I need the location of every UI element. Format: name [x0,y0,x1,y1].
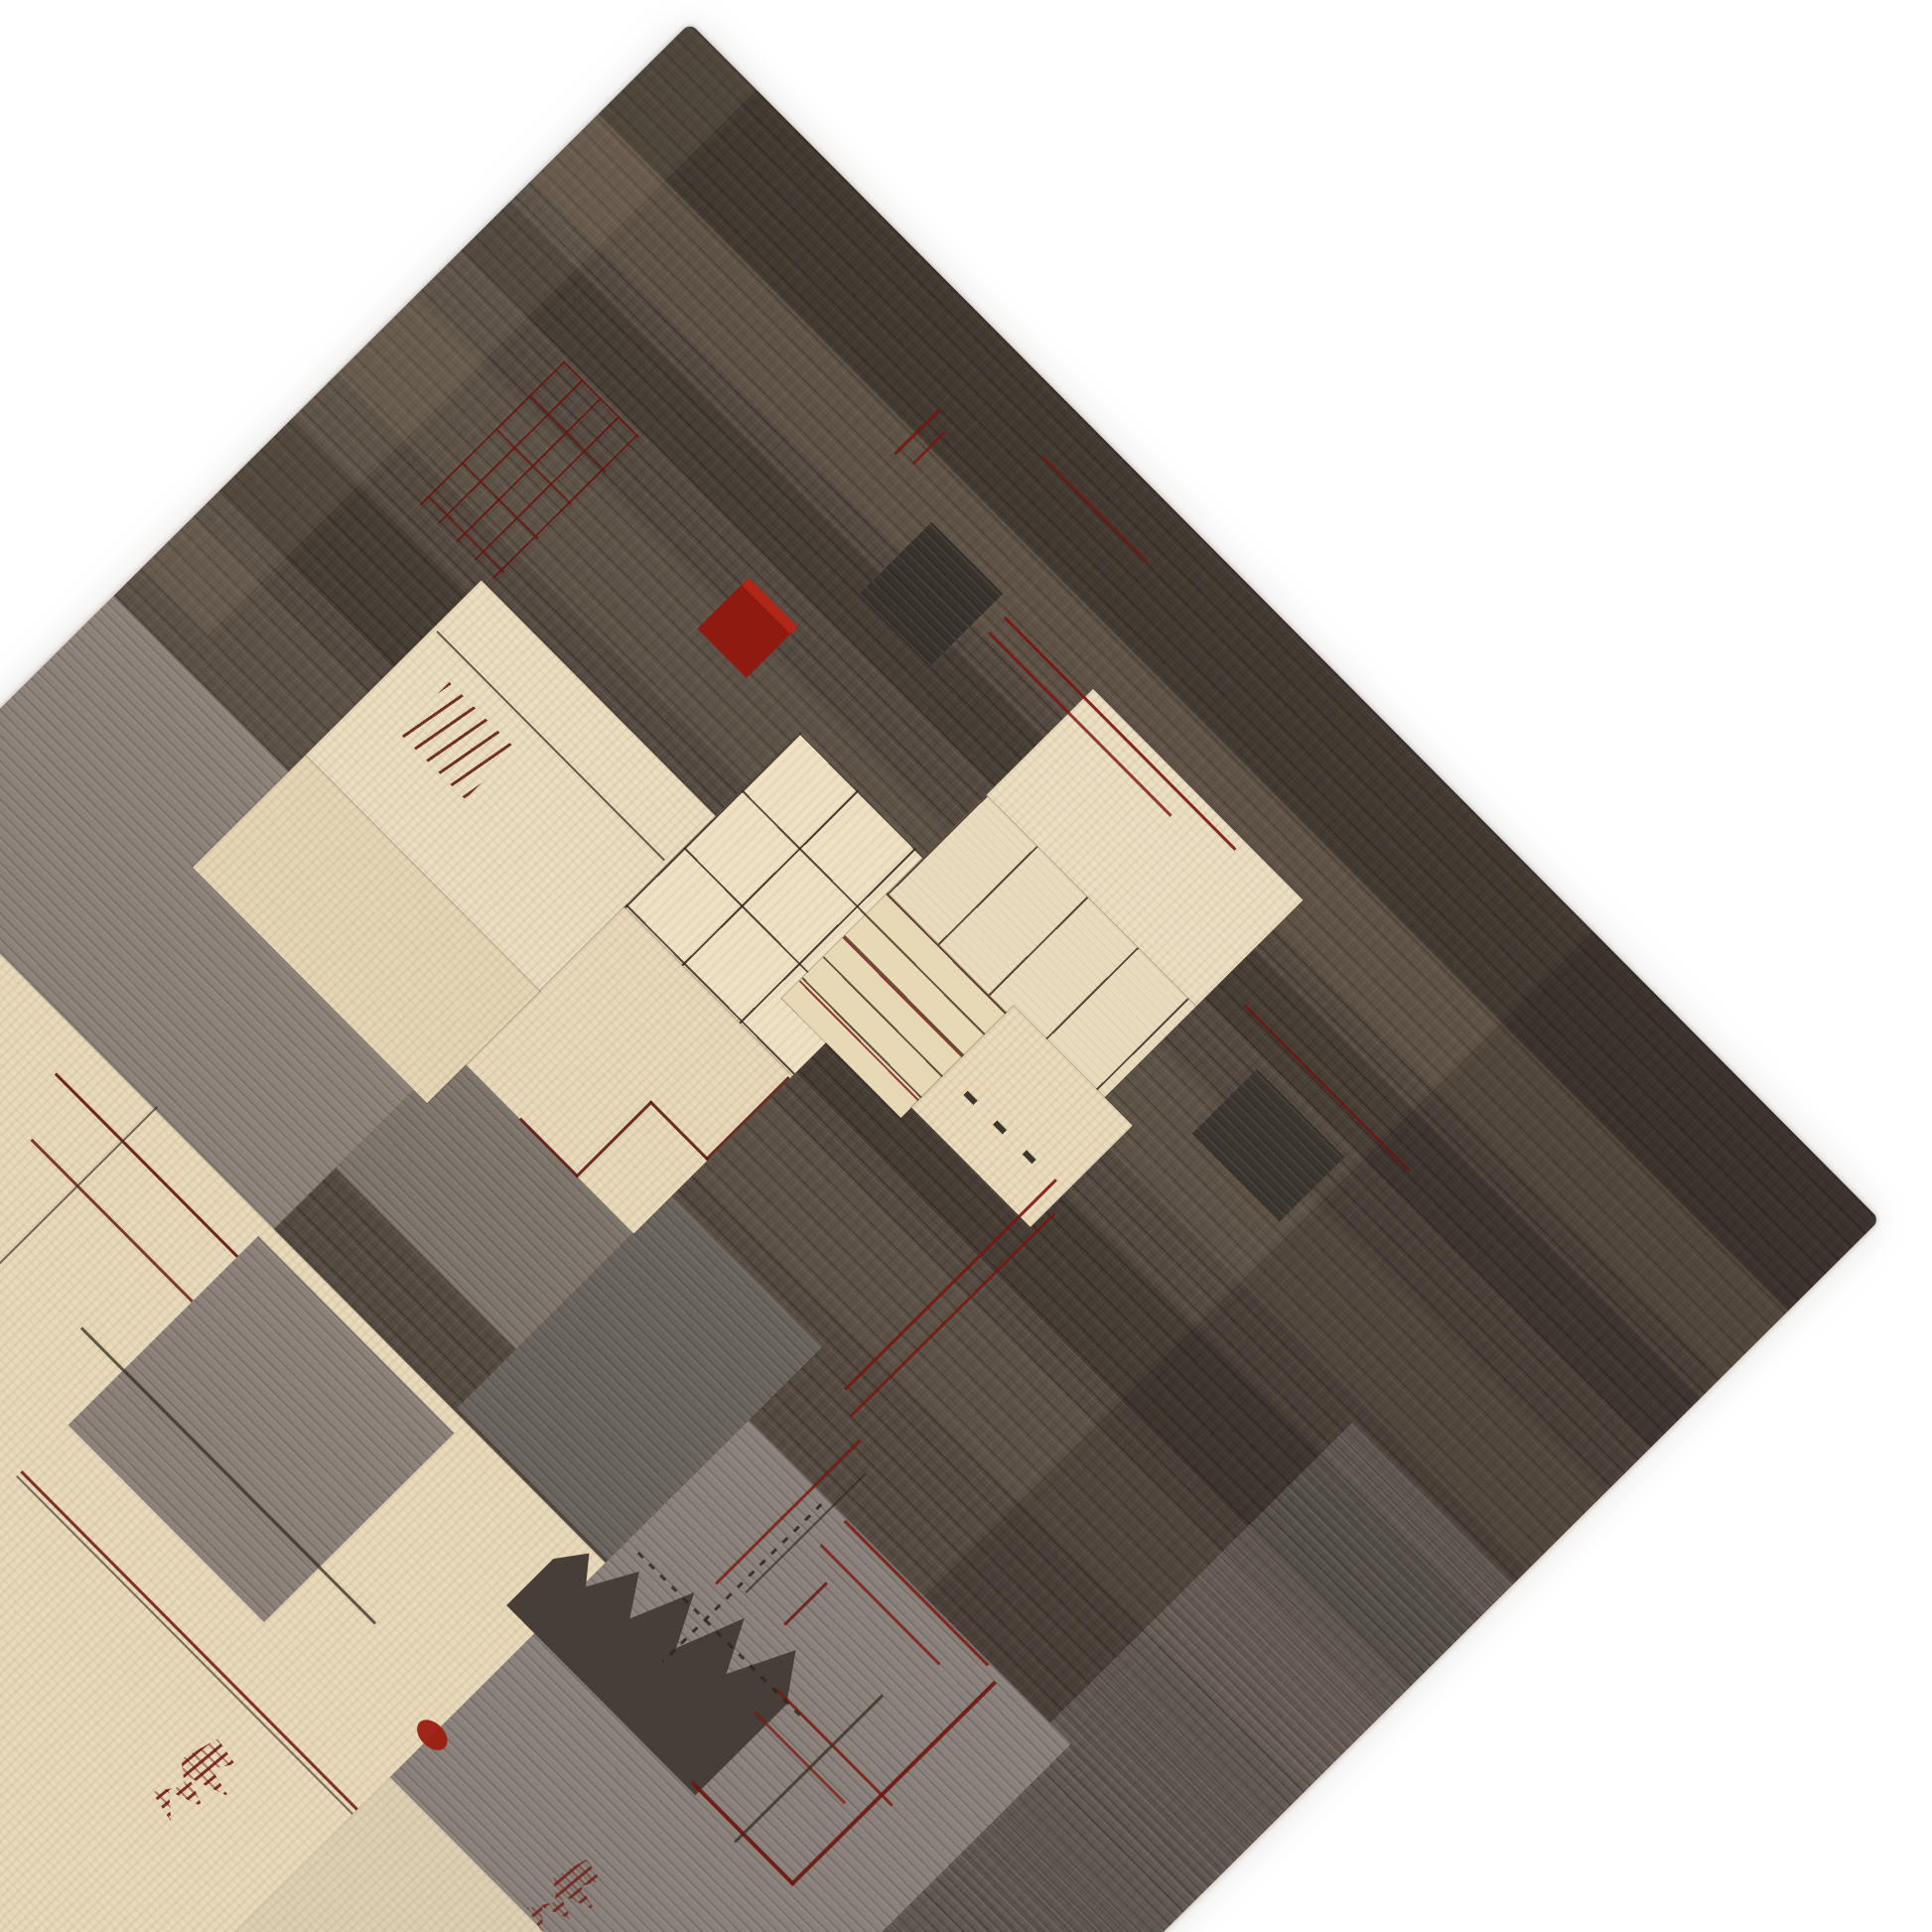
rug-product-photo: { "meta": { "subject": "Modern Gabbeh-st… [0,0,1932,1932]
studio-backdrop [0,0,1932,1932]
rug-photo [0,23,1880,1932]
field-left-light-edge [141,23,757,635]
